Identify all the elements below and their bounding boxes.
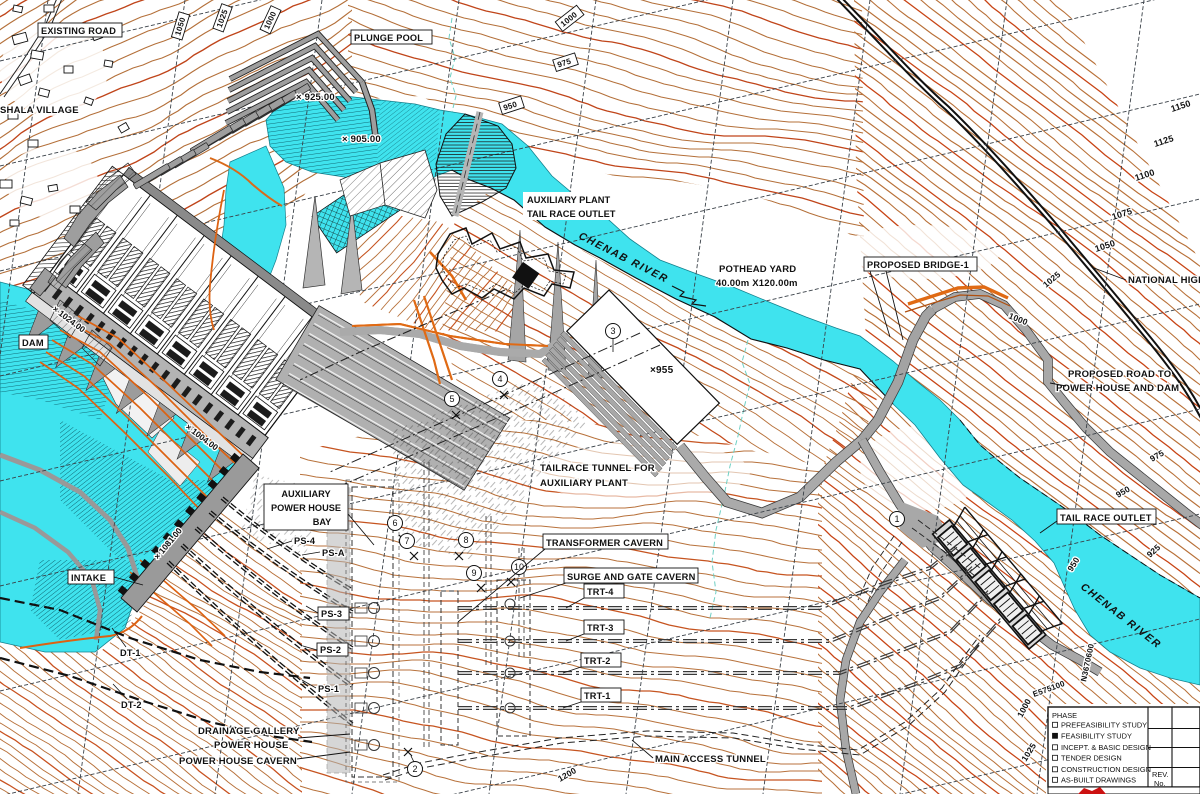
svg-text:PROPOSED ROAD TO: PROPOSED ROAD TO <box>1068 369 1171 380</box>
svg-text:DT-1: DT-1 <box>120 648 141 658</box>
svg-text:2: 2 <box>412 764 417 774</box>
svg-text:40.00m X120.00m: 40.00m X120.00m <box>716 278 798 289</box>
svg-text:PS-1: PS-1 <box>318 684 339 694</box>
svg-text:TAIL RACE OUTLET: TAIL RACE OUTLET <box>1060 513 1152 523</box>
svg-text:SHALA VILLAGE: SHALA VILLAGE <box>0 105 79 116</box>
svg-text:TENDER DESIGN: TENDER DESIGN <box>1061 754 1122 763</box>
svg-text:PHASE: PHASE <box>1052 711 1077 720</box>
svg-text:PLUNGE POOL: PLUNGE POOL <box>354 33 423 43</box>
svg-text:NATIONAL HIGH: NATIONAL HIGH <box>1128 275 1200 286</box>
svg-text:POWER HOUSE: POWER HOUSE <box>271 503 341 513</box>
svg-text:PS-3: PS-3 <box>321 609 342 619</box>
svg-text:POTHEAD YARD: POTHEAD YARD <box>719 264 796 275</box>
svg-text:TRANSFORMER CAVERN: TRANSFORMER CAVERN <box>546 538 663 548</box>
svg-text:AS-BUILT DRAWINGS: AS-BUILT DRAWINGS <box>1061 776 1136 785</box>
svg-text:TAIL RACE OUTLET: TAIL RACE OUTLET <box>527 209 616 219</box>
svg-text:PS-2: PS-2 <box>320 645 341 655</box>
svg-text:POWER HOUSE AND DAM: POWER HOUSE AND DAM <box>1056 383 1179 394</box>
svg-text:TRT-2: TRT-2 <box>584 656 611 666</box>
svg-text:POWER HOUSE CAVERN: POWER HOUSE CAVERN <box>179 756 297 767</box>
svg-text:CONSTRUCTION DESIGN: CONSTRUCTION DESIGN <box>1061 765 1151 774</box>
svg-text:TRT-1: TRT-1 <box>584 691 611 701</box>
svg-text:× 925.00: × 925.00 <box>296 92 335 103</box>
svg-text:× 905.00: × 905.00 <box>342 134 381 145</box>
svg-text:PS-A: PS-A <box>322 548 345 558</box>
svg-text:5: 5 <box>449 394 454 404</box>
svg-text:AUXILIARY PLANT: AUXILIARY PLANT <box>540 478 628 489</box>
svg-text:8: 8 <box>463 535 468 545</box>
svg-text:TRT-4: TRT-4 <box>587 587 614 597</box>
svg-text:BAY: BAY <box>313 517 332 527</box>
svg-text:TAILRACE TUNNEL FOR: TAILRACE TUNNEL FOR <box>540 463 655 474</box>
svg-text:MAIN ACCESS TUNNEL: MAIN ACCESS TUNNEL <box>655 754 766 765</box>
svg-text:INTAKE: INTAKE <box>71 573 106 583</box>
svg-text:PS-4: PS-4 <box>294 536 316 546</box>
svg-text:POWER HOUSE: POWER HOUSE <box>214 740 289 751</box>
svg-text:6: 6 <box>392 518 397 528</box>
svg-text:REV.: REV. <box>1152 770 1169 779</box>
svg-text:1: 1 <box>894 514 899 524</box>
svg-text:DT-2: DT-2 <box>121 700 142 710</box>
svg-text:DRAINAGE GALLERY: DRAINAGE GALLERY <box>198 726 300 737</box>
svg-text:INCEPT. & BASIC DESIGN: INCEPT. & BASIC DESIGN <box>1061 743 1151 752</box>
svg-text:EXISTING ROAD: EXISTING ROAD <box>41 26 116 36</box>
svg-text:FEASIBILITY STUDY: FEASIBILITY STUDY <box>1061 732 1132 741</box>
svg-text:DAM: DAM <box>22 338 44 348</box>
svg-text:7: 7 <box>404 536 409 546</box>
svg-text:3: 3 <box>610 326 615 336</box>
svg-text:AUXILIARY PLANT: AUXILIARY PLANT <box>527 195 610 205</box>
svg-text:AUXILIARY: AUXILIARY <box>281 489 330 499</box>
svg-text:9: 9 <box>471 568 476 578</box>
svg-text:SURGE AND GATE CAVERN: SURGE AND GATE CAVERN <box>567 572 696 582</box>
svg-text:PREFEASIBILITY STUDY: PREFEASIBILITY STUDY <box>1061 721 1147 730</box>
svg-text:PROPOSED BRIDGE-1: PROPOSED BRIDGE-1 <box>867 260 969 270</box>
svg-text:×955: ×955 <box>650 365 674 376</box>
svg-text:4: 4 <box>497 374 502 384</box>
svg-text:TRT-3: TRT-3 <box>587 623 614 633</box>
